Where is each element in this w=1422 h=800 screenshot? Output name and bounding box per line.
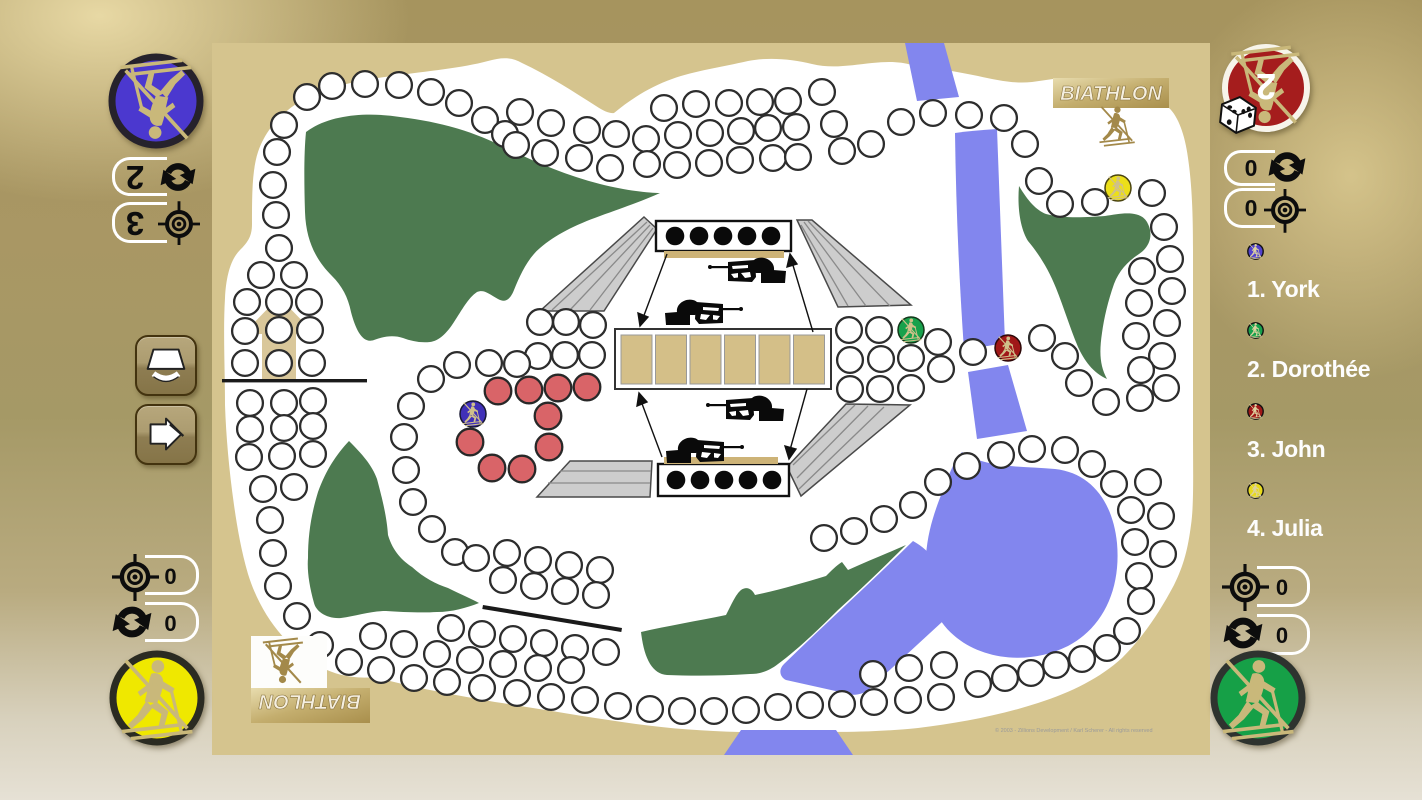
svg-text:BIATHLON: BIATHLON [1060,83,1162,105]
svg-text:2: 2 [1256,66,1276,107]
svg-text:BIATHLON: BIATHLON [259,690,361,712]
svg-text:© 2003 - Zillions Development: © 2003 - Zillions Development / Karl Sch… [995,727,1153,734]
